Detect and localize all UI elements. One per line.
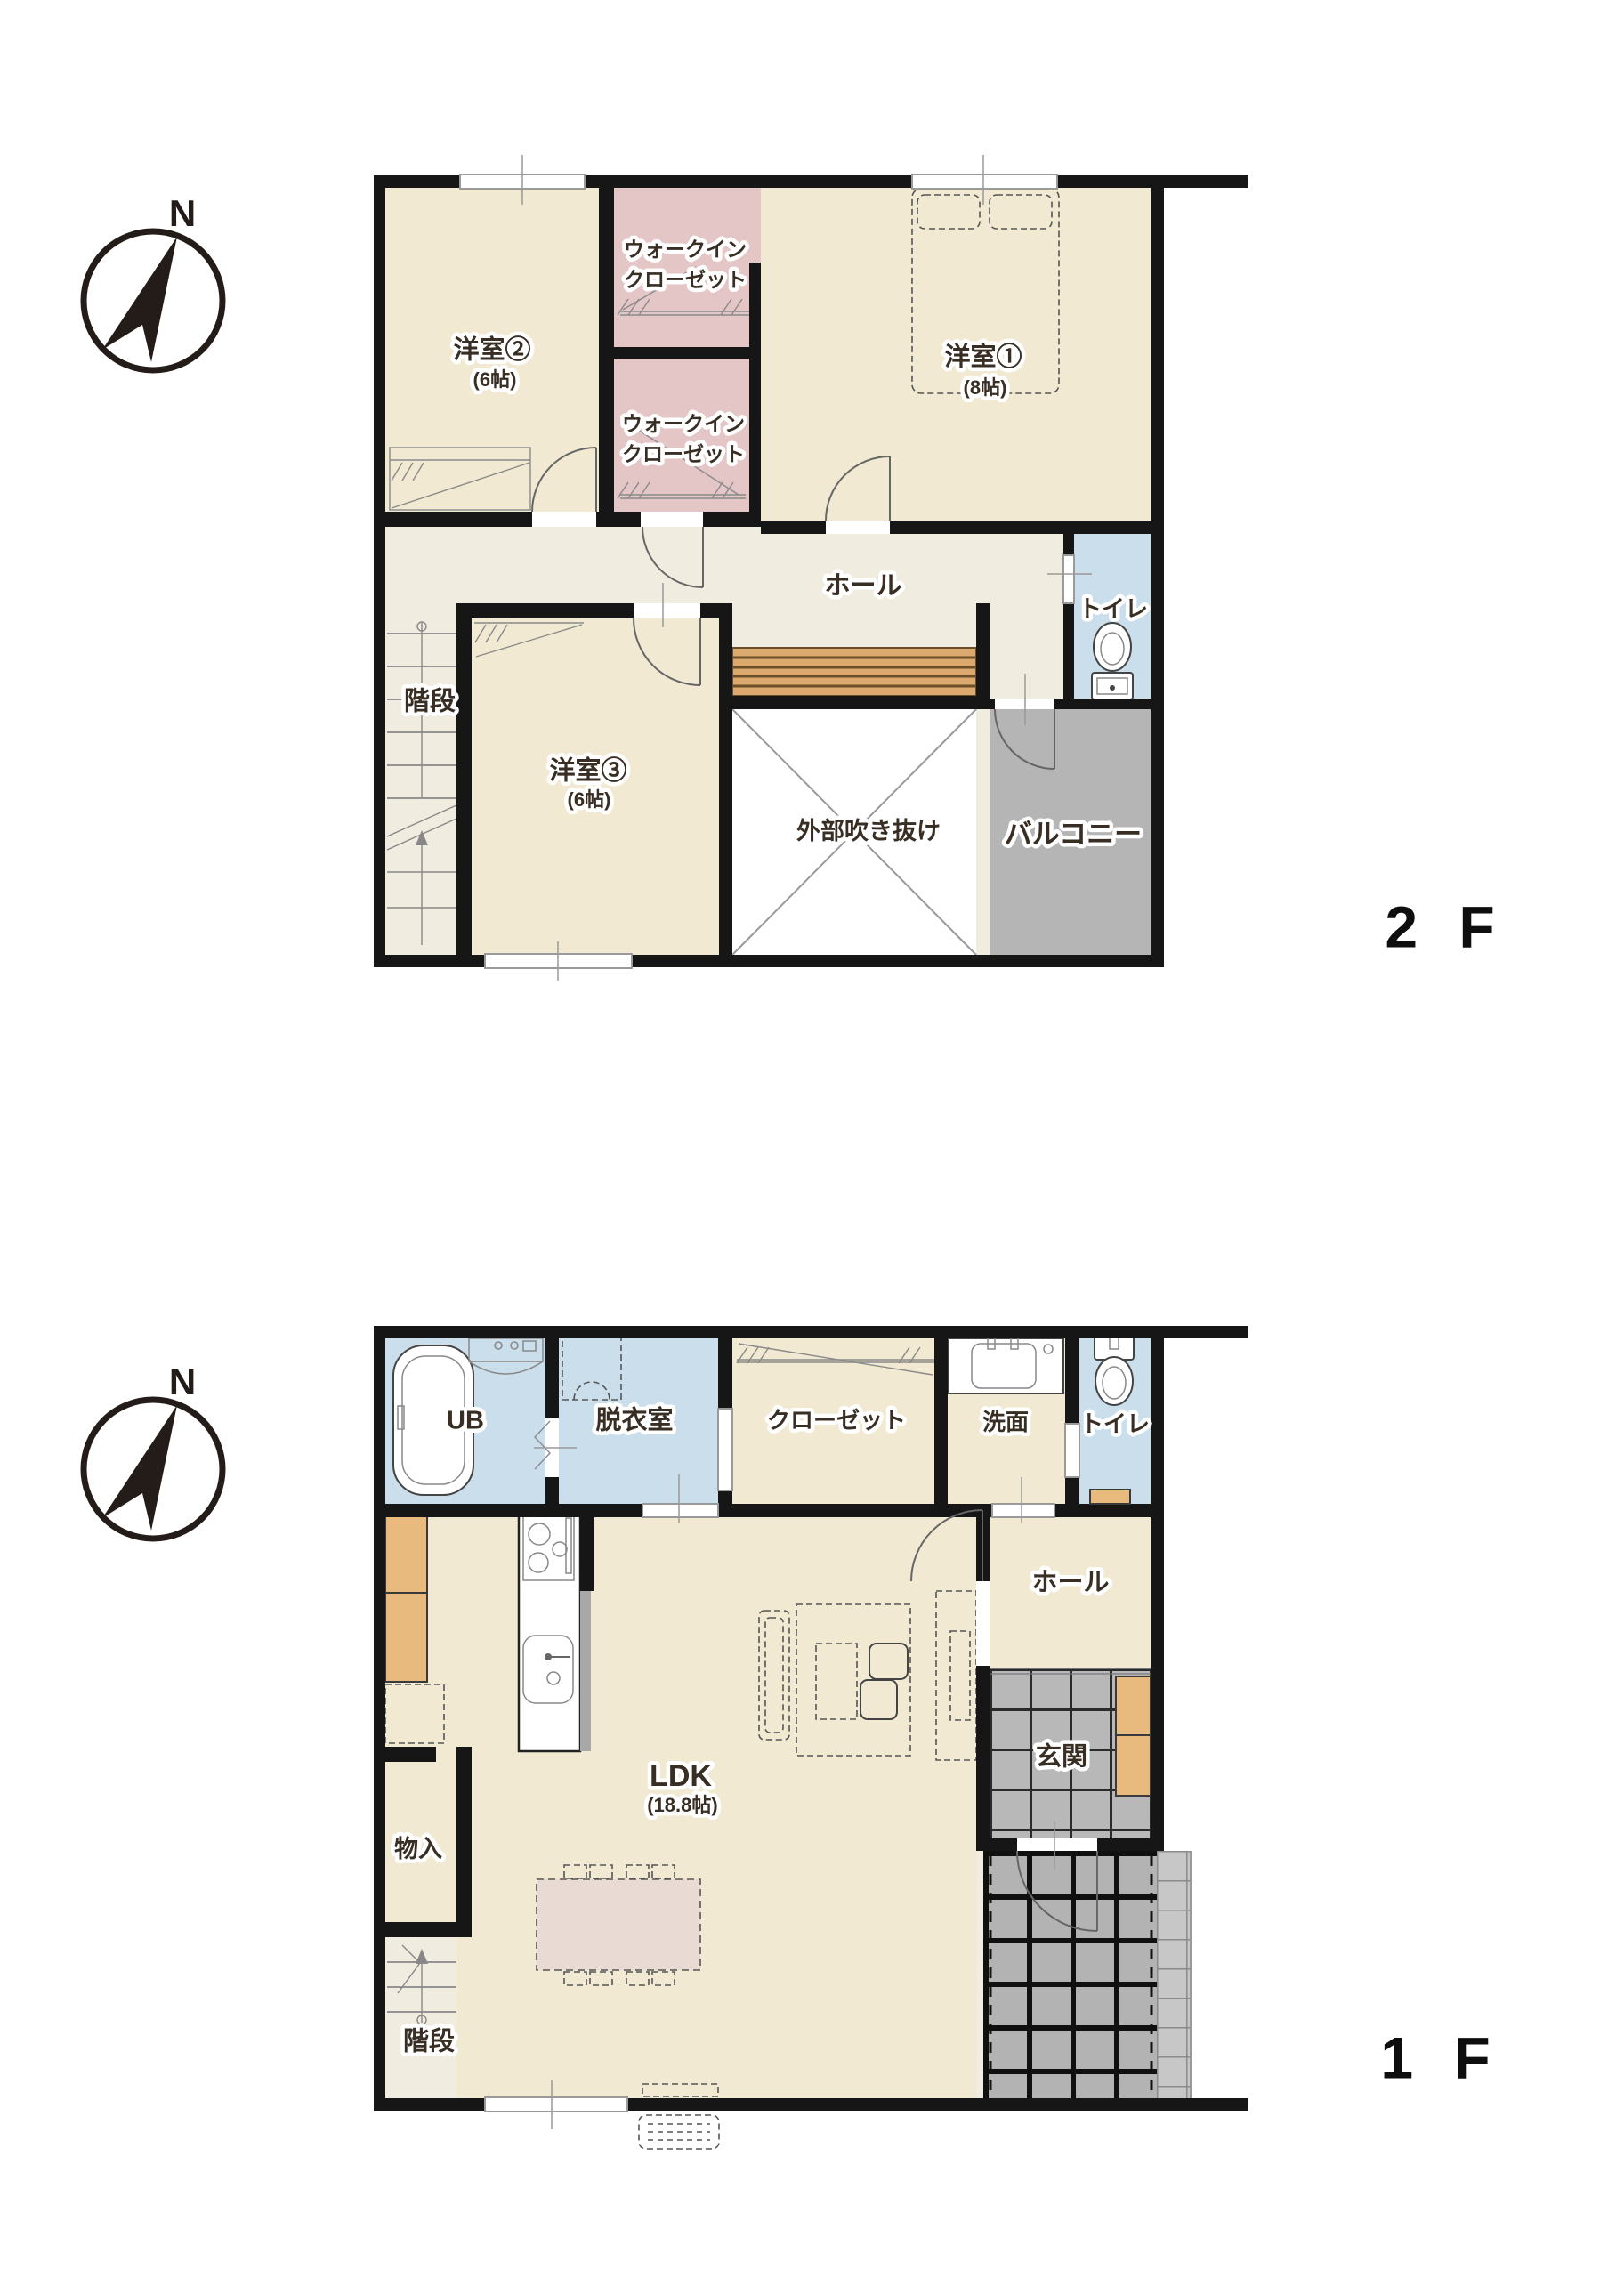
room-label-1f-toilet: トイレ	[1080, 1410, 1150, 1437]
room-label-2f-void: 外部吹き抜け	[796, 817, 941, 844]
room-size-2f-yoshitsu2: (6帖)	[473, 368, 517, 391]
shoe-cabinet-icon	[1116, 1676, 1151, 1796]
room-label-1f-hall: ホール	[1031, 1569, 1109, 1597]
dining-set-icon	[537, 1865, 700, 1985]
room-size-2f-yoshitsu3: (6帖)	[568, 788, 611, 811]
room-label-2f-wic-lower-2: クローゼット	[622, 442, 745, 465]
room-label-2f-toilet: トイレ	[1079, 595, 1148, 622]
compass-needle-icon	[102, 237, 177, 362]
compass-north-label-1f: N	[169, 1361, 196, 1402]
room-size-1f-ldk: (18.8帖)	[647, 1794, 717, 1816]
toilet-icon-1f	[1095, 1333, 1134, 1405]
room-label-1f-closet: クローゼット	[767, 1407, 906, 1434]
floor-plan-page: N	[0, 0, 1624, 2278]
room-label-1f-storage: 物入	[394, 1836, 442, 1862]
room-label-1f-ub: UB	[447, 1407, 484, 1435]
floor-plan-canvas: N	[0, 0, 1624, 2278]
kitchen-counter-icon	[519, 1506, 591, 1751]
floor-label-1f: 1 F	[1380, 2024, 1502, 2090]
room-label-2f-balcony: バルコニー	[1005, 819, 1142, 850]
room-label-1f-stairs: 階段	[403, 2026, 455, 2056]
washbasin-icon	[948, 1335, 1063, 1393]
compass-1f: N	[84, 1361, 222, 1539]
room-label-1f-ldk: LDK	[650, 1759, 712, 1793]
room-2f-yoshitsu3	[472, 618, 719, 955]
room-label-2f-yoshitsu1: 洋室①	[944, 342, 1022, 372]
floor-plan-2f: 洋室② (6帖) ウォークイン クローゼット ウォークイン クローゼット 洋室①…	[374, 155, 1248, 981]
room-label-2f-yoshitsu3: 洋室③	[549, 755, 626, 786]
toilet-threshold	[1090, 1490, 1130, 1504]
room-label-2f-stairs: 階段	[404, 686, 456, 716]
room-label-1f-genkan: 玄関	[1036, 1741, 1087, 1772]
room-label-2f-wic-lower-1: ウォークイン	[622, 412, 745, 435]
room-size-2f-yoshitsu1: (8帖)	[964, 376, 1007, 399]
room-label-2f-yoshitsu2: 洋室②	[453, 335, 530, 365]
toilet-icon-2f	[1092, 623, 1133, 699]
compass-2f: N	[84, 192, 222, 370]
louver-screen-icon	[732, 648, 976, 696]
floor-plan-1f: UB 脱衣室 クローゼット 洗面 トイレ ホール LDK (18.8帖) 玄関 …	[374, 1326, 1248, 2149]
room-label-1f-dressing: 脱衣室	[595, 1405, 673, 1435]
room-label-2f-wic-upper-2: クローゼット	[624, 268, 747, 291]
kitchen-cabinet-icon	[385, 1513, 427, 1682]
room-label-1f-washroom: 洗面	[982, 1409, 1029, 1435]
ac-outdoor-unit-icon	[639, 2115, 719, 2149]
entrance-porch	[983, 1851, 1191, 2098]
room-label-2f-hall: ホール	[824, 572, 901, 601]
compass-needle-icon	[102, 1405, 177, 1531]
floor-label-2f: 2 F	[1385, 893, 1507, 959]
room-label-2f-wic-upper-1: ウォークイン	[624, 238, 747, 261]
compass-north-label-2f: N	[169, 192, 196, 234]
